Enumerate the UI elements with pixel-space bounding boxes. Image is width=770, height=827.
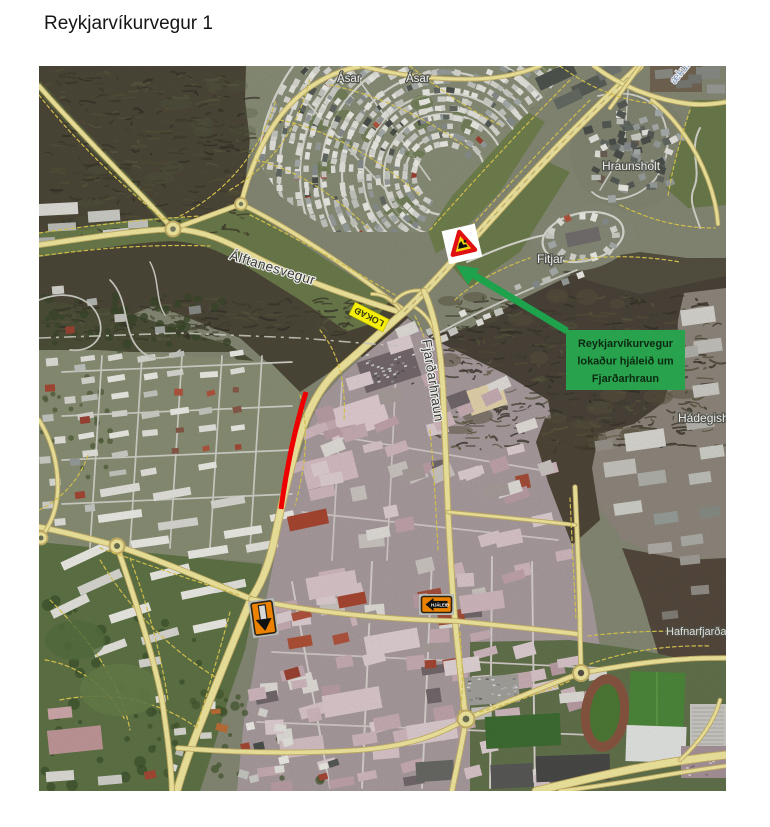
svg-text:lokaður hjáleið um: lokaður hjáleið um xyxy=(577,356,674,368)
svg-text:Reykjarvíkurvegur: Reykjarvíkurvegur xyxy=(578,338,674,350)
svg-text:HJÁLEIÐ: HJÁLEIÐ xyxy=(431,602,449,607)
svg-text:Fjarðarhraun: Fjarðarhraun xyxy=(592,373,659,385)
